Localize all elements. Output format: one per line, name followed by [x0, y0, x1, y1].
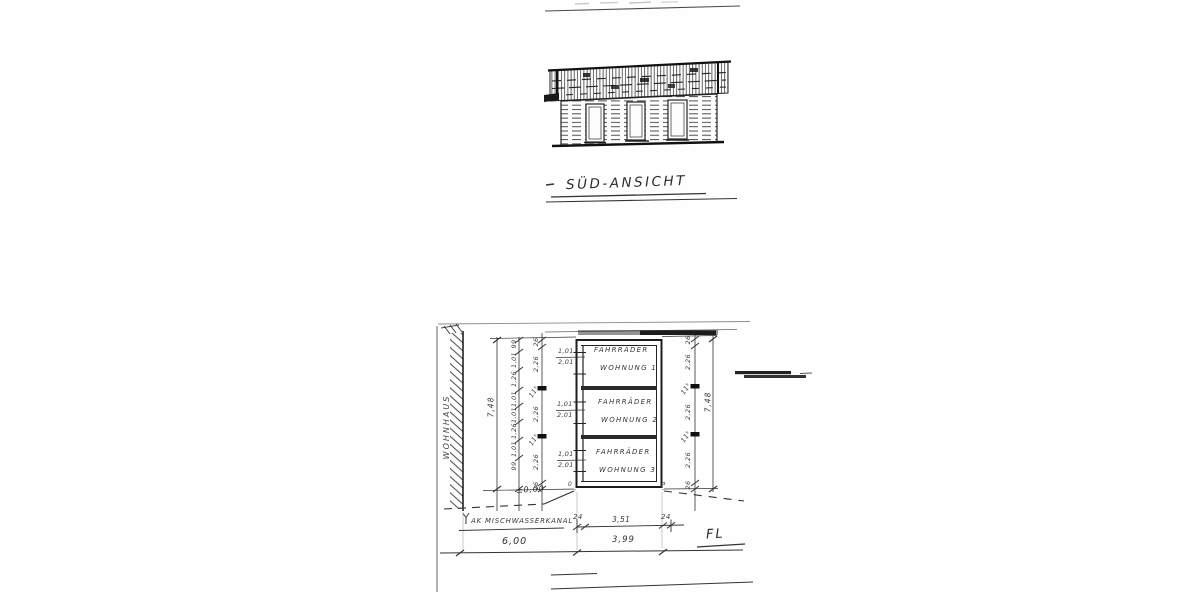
door-1-width: 1,01 [558, 348, 574, 355]
wohnhaus-label: WOHNHAUS [443, 395, 451, 460]
dim-bottom-left-span: 6,00 [502, 537, 527, 547]
scanned-architectural-sheet: SÜD-ANSICHT FAHRRÄDER WOHNUNG 1 FAHRRÄDE… [0, 0, 1200, 600]
door-2-height: 2,01 [557, 412, 573, 419]
room-3-label-line1: FAHRRÄDER [596, 449, 651, 456]
fl-label: FL [706, 528, 725, 542]
elevation-door-1 [584, 104, 606, 143]
elevation-door-2 [625, 102, 649, 141]
level-label: ±0,00 [516, 485, 545, 494]
door-1-height: 2,01 [558, 359, 574, 366]
dim-left-inner-0: 99 [511, 339, 518, 348]
dim-left-inner-7: 99 [511, 461, 518, 470]
dim-left-inner-6: 1,01 [511, 441, 518, 457]
dim-bottom-small-2: 24 [661, 514, 671, 521]
dim-left-inner-5: 1,26 [511, 423, 518, 439]
room-1-label-line2: WOHNUNG 1 [600, 365, 657, 372]
dim-left-inner-2: 1,26 [511, 371, 518, 387]
dim-left-outer-5: 2,26 [533, 454, 540, 470]
partition-wall-2 [581, 435, 657, 439]
south-elevation-drawing [544, 62, 731, 147]
dim-left-total: 7,48 [487, 397, 495, 418]
dim-right-0: 26 [685, 335, 692, 344]
dim-right-6: 26 [685, 480, 692, 489]
dim-left-outer-0: 26 [533, 337, 540, 346]
sewer-label: AK MISCHWASSERKANAL [471, 518, 573, 525]
partition-wall-1 [581, 386, 657, 390]
top-page-edge [545, 2, 740, 11]
room-2-label-line1: FAHRRÄDER [598, 399, 653, 406]
floor-plan [444, 338, 744, 509]
room-2-label-line2: WOHNUNG 2 [601, 417, 658, 424]
dim-right-3: 2,26 [685, 404, 692, 420]
door-2-width: 1,01 [557, 401, 573, 408]
dim-left-inner-4: 1,01 [511, 407, 518, 423]
dim-left-outer-3: 2,26 [533, 406, 540, 422]
door-3-width: 1,01 [558, 451, 574, 458]
dim-left-inner-3: 1,01 [511, 391, 518, 407]
elevation-door-3 [666, 100, 689, 140]
room-3-label-line2: WOHNUNG 3 [599, 467, 656, 474]
dim-bottom-small-0: 24 [573, 514, 583, 521]
dim-left-outer-1: 2,26 [533, 356, 540, 372]
dim-right-5: 2,26 [685, 452, 692, 468]
room-1-label-line1: FAHRRÄDER [594, 347, 649, 354]
door-3-height: 2,01 [558, 462, 574, 469]
dim-bottom-small-1: 3,51 [612, 516, 630, 524]
dim-right-1: 2,26 [685, 354, 692, 370]
corner-mark-left: 0 [568, 482, 572, 488]
corner-mark-right: P [661, 482, 665, 489]
scan-linework [0, 0, 1200, 600]
dim-bottom-right-span: 3,99 [612, 536, 635, 545]
dim-left-inner-1: 1,01 [511, 352, 518, 368]
dim-right-total: 7,48 [704, 392, 712, 413]
